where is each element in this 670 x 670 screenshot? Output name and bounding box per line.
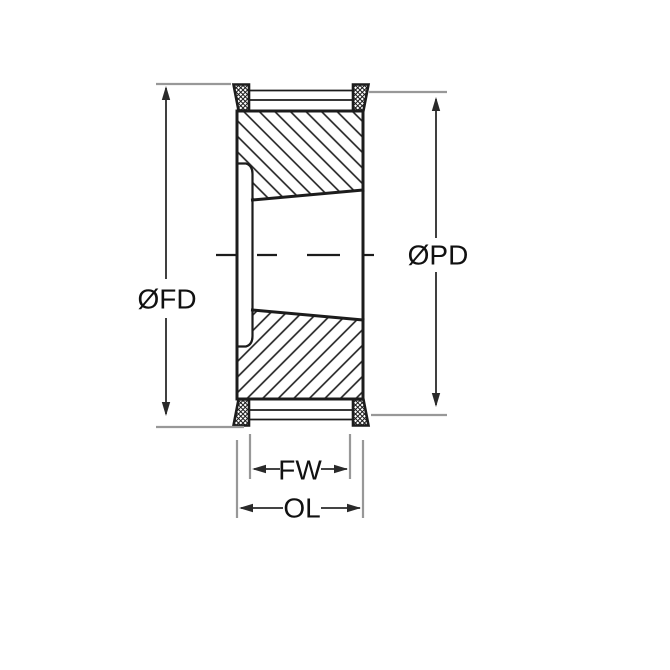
dimension-pd: ØPD [369, 92, 468, 415]
flange-top-left [234, 85, 250, 111]
pd-arrow-top [432, 97, 440, 111]
drawing-canvas: ØFD ØPD FW [0, 0, 670, 670]
hub-section-lower [237, 310, 363, 399]
bushing-flange-strip [237, 164, 253, 347]
ol-arrow-right [347, 504, 361, 512]
dimension-fw: FW [250, 434, 350, 486]
ol-label: OL [283, 493, 320, 524]
pd-label: ØPD [408, 240, 469, 271]
hub-section-upper [237, 111, 363, 200]
fw-label: FW [278, 455, 322, 486]
flange-top-right [353, 85, 369, 111]
pulley-cross-section-drawing: ØFD ØPD FW [0, 0, 670, 670]
ol-arrow-left [239, 504, 253, 512]
fw-arrow-right [334, 465, 348, 473]
fd-label: ØFD [137, 284, 196, 315]
fw-arrow-left [252, 465, 266, 473]
fd-arrow-bottom [162, 402, 170, 416]
flange-bottom-right [353, 400, 369, 426]
pd-arrow-bottom [432, 393, 440, 407]
pulley-body [234, 85, 369, 426]
fd-arrow-top [162, 86, 170, 100]
flange-bottom-left [234, 400, 250, 426]
